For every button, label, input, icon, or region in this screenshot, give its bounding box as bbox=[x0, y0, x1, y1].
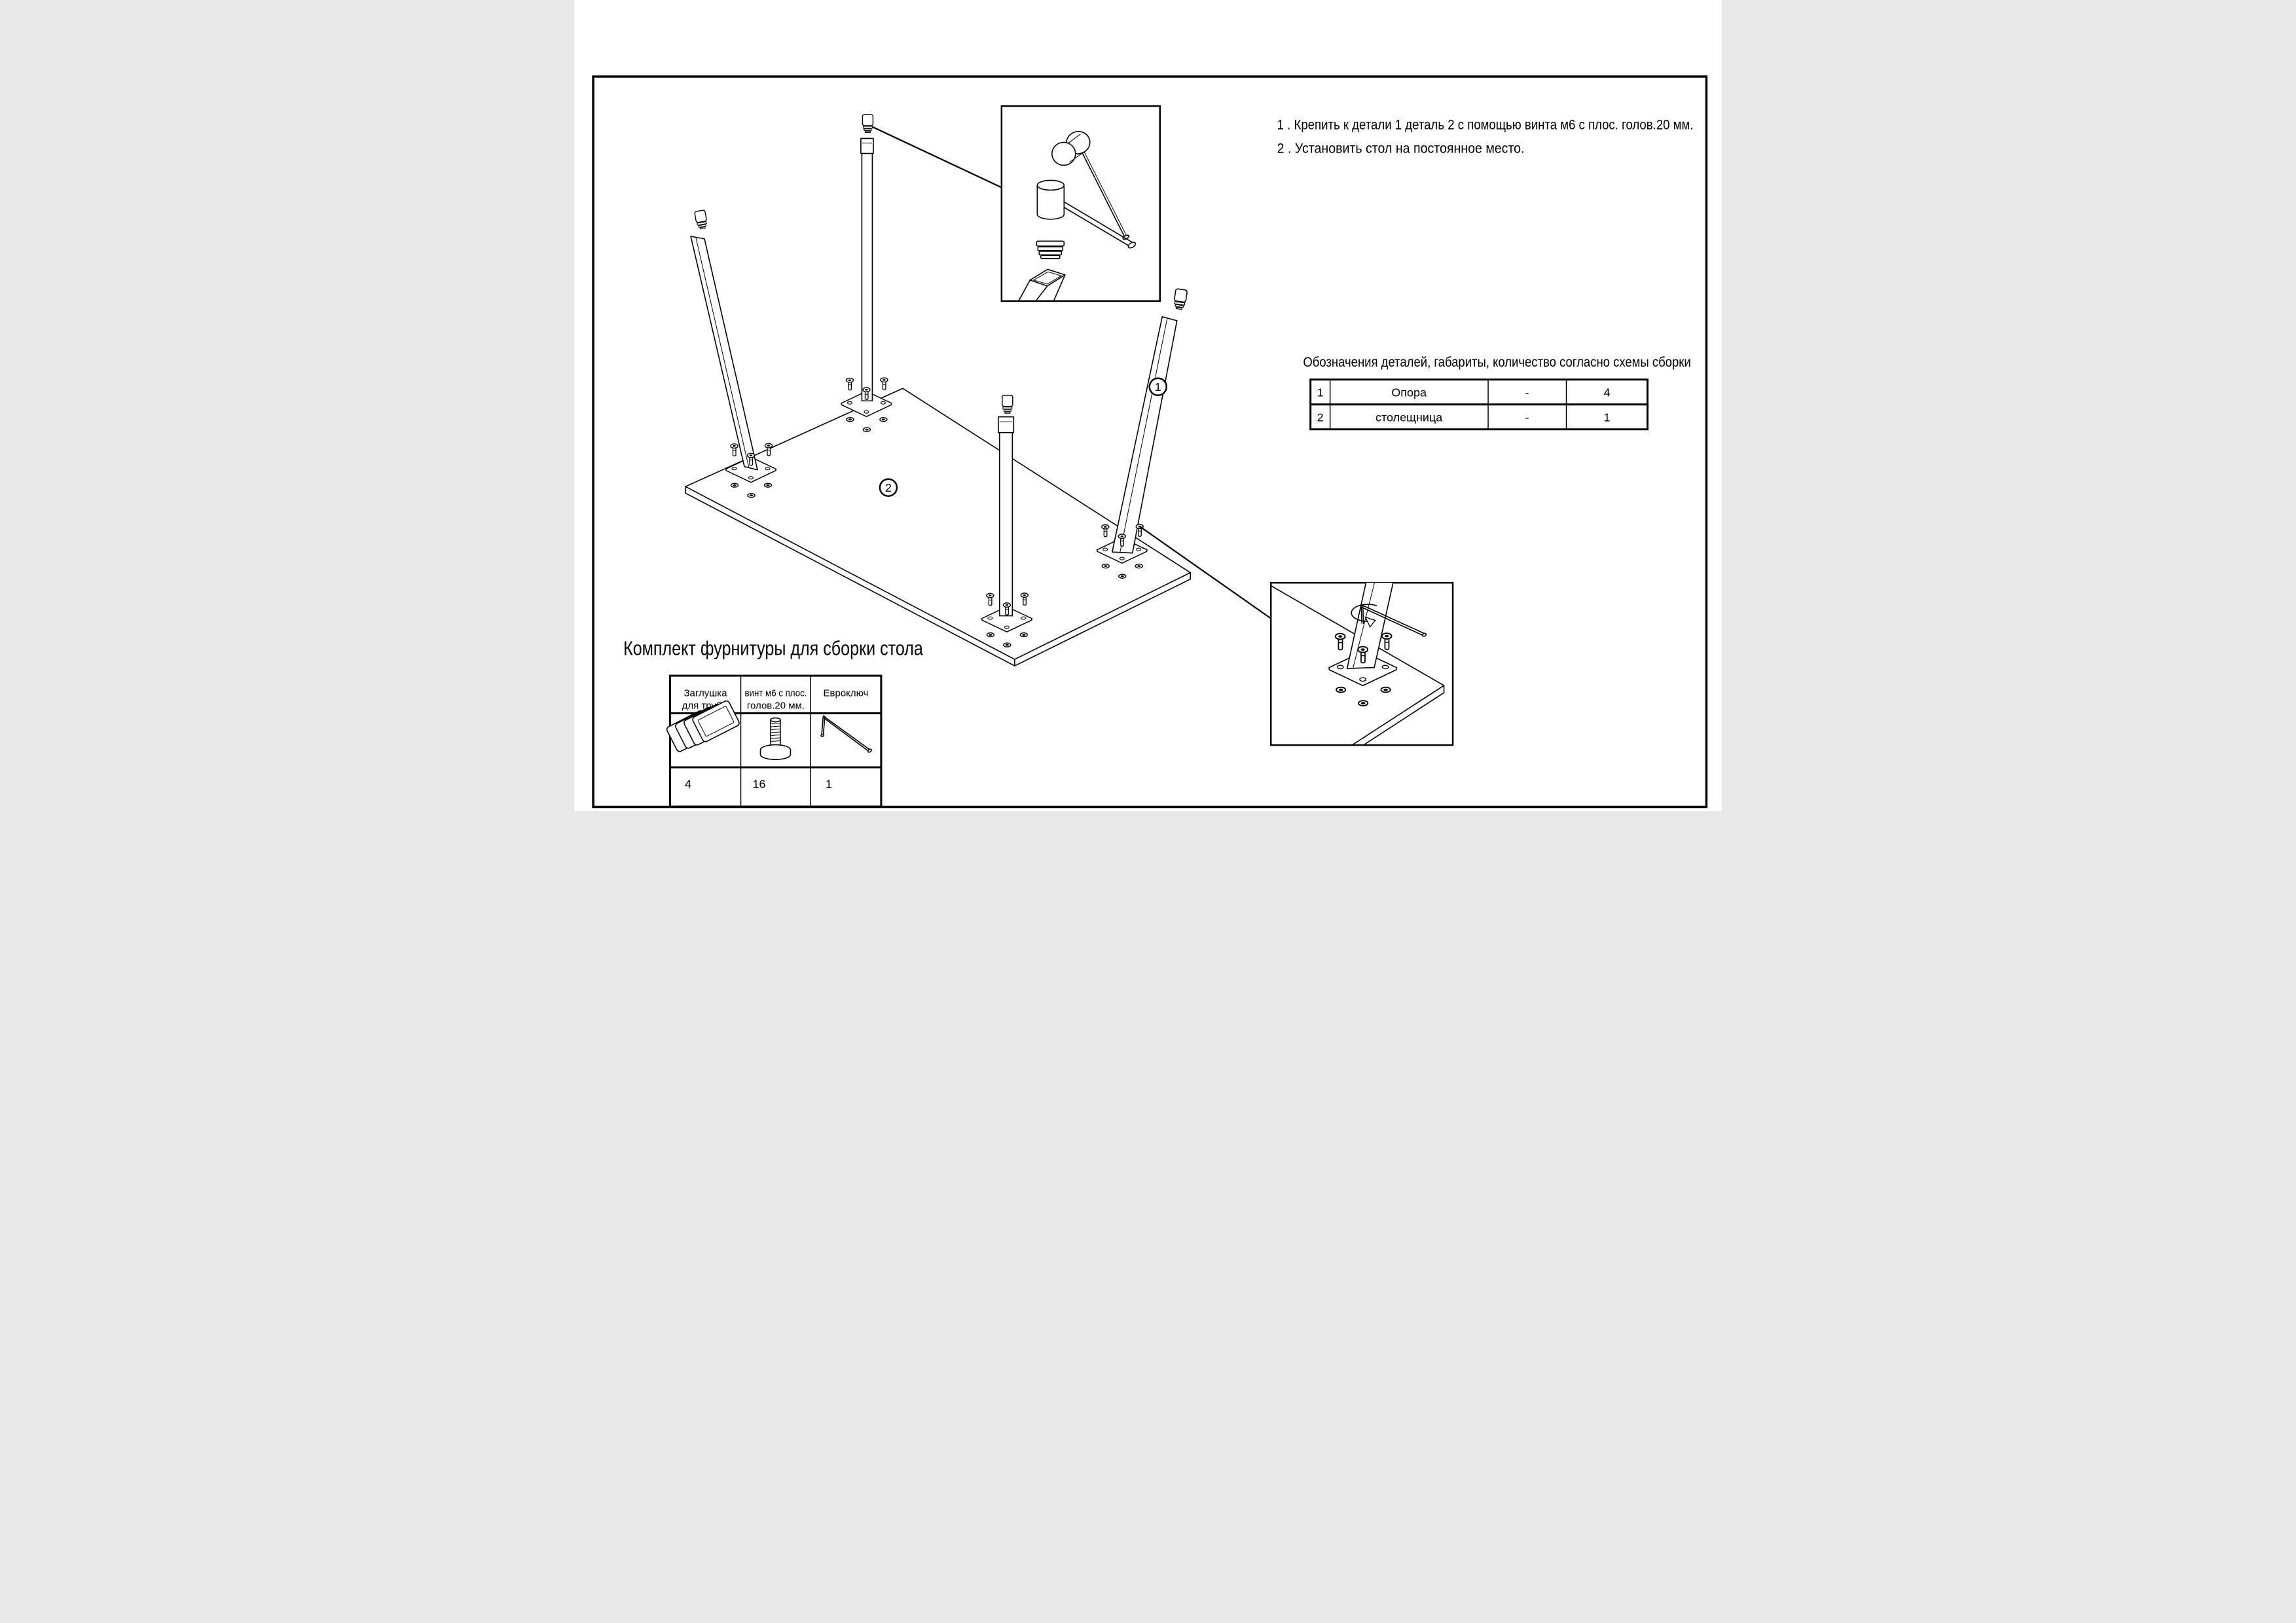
leg-north-vertical bbox=[861, 138, 873, 401]
balloon-1-label: 1 bbox=[1155, 380, 1161, 393]
caps-qty: 4 bbox=[685, 778, 691, 791]
detail-box-corner bbox=[1271, 579, 1453, 745]
balloon-part-2: 2 bbox=[880, 479, 897, 496]
row1-num: 1 bbox=[1317, 386, 1324, 399]
hexkey-qty: 1 bbox=[826, 778, 832, 791]
assembly-sheet: 1 2 bbox=[574, 0, 1722, 811]
row2-dim: - bbox=[1525, 411, 1529, 424]
row1-name: Опора bbox=[1391, 386, 1427, 399]
note-line-2: 2 . Установить стол на постоянное место. bbox=[1277, 141, 1525, 156]
balloon-2-label: 2 bbox=[885, 481, 892, 494]
row2-num: 2 bbox=[1317, 411, 1324, 424]
screw-label-1: винт м6 с плос. bbox=[744, 688, 807, 699]
leg-south-vertical bbox=[998, 417, 1013, 616]
hardware-kit-title: Комплект фурнитуры для сборки стола bbox=[623, 637, 923, 660]
detail-box-cap bbox=[1002, 106, 1160, 301]
row2-name: столещница bbox=[1376, 411, 1442, 424]
screw-label-2: голов.20 мм. bbox=[747, 701, 805, 712]
balloon-part-1: 1 bbox=[1150, 378, 1167, 395]
caps-label-1: Заглушка bbox=[684, 688, 728, 699]
row1-dim: - bbox=[1525, 386, 1529, 399]
tube-cap-south-icon bbox=[1002, 395, 1013, 413]
hexkey-label-1: Евроключ bbox=[824, 688, 869, 699]
row2-qty: 1 bbox=[1603, 411, 1610, 424]
parts-table-title: Обозначения деталей, габариты, количеств… bbox=[1303, 355, 1690, 370]
tube-cap-north-icon bbox=[862, 115, 873, 132]
row1-qty: 4 bbox=[1603, 386, 1610, 399]
note-line-1: 1 . Крепить к детали 1 деталь 2 с помощь… bbox=[1277, 117, 1694, 132]
screw-qty: 16 bbox=[752, 778, 765, 791]
